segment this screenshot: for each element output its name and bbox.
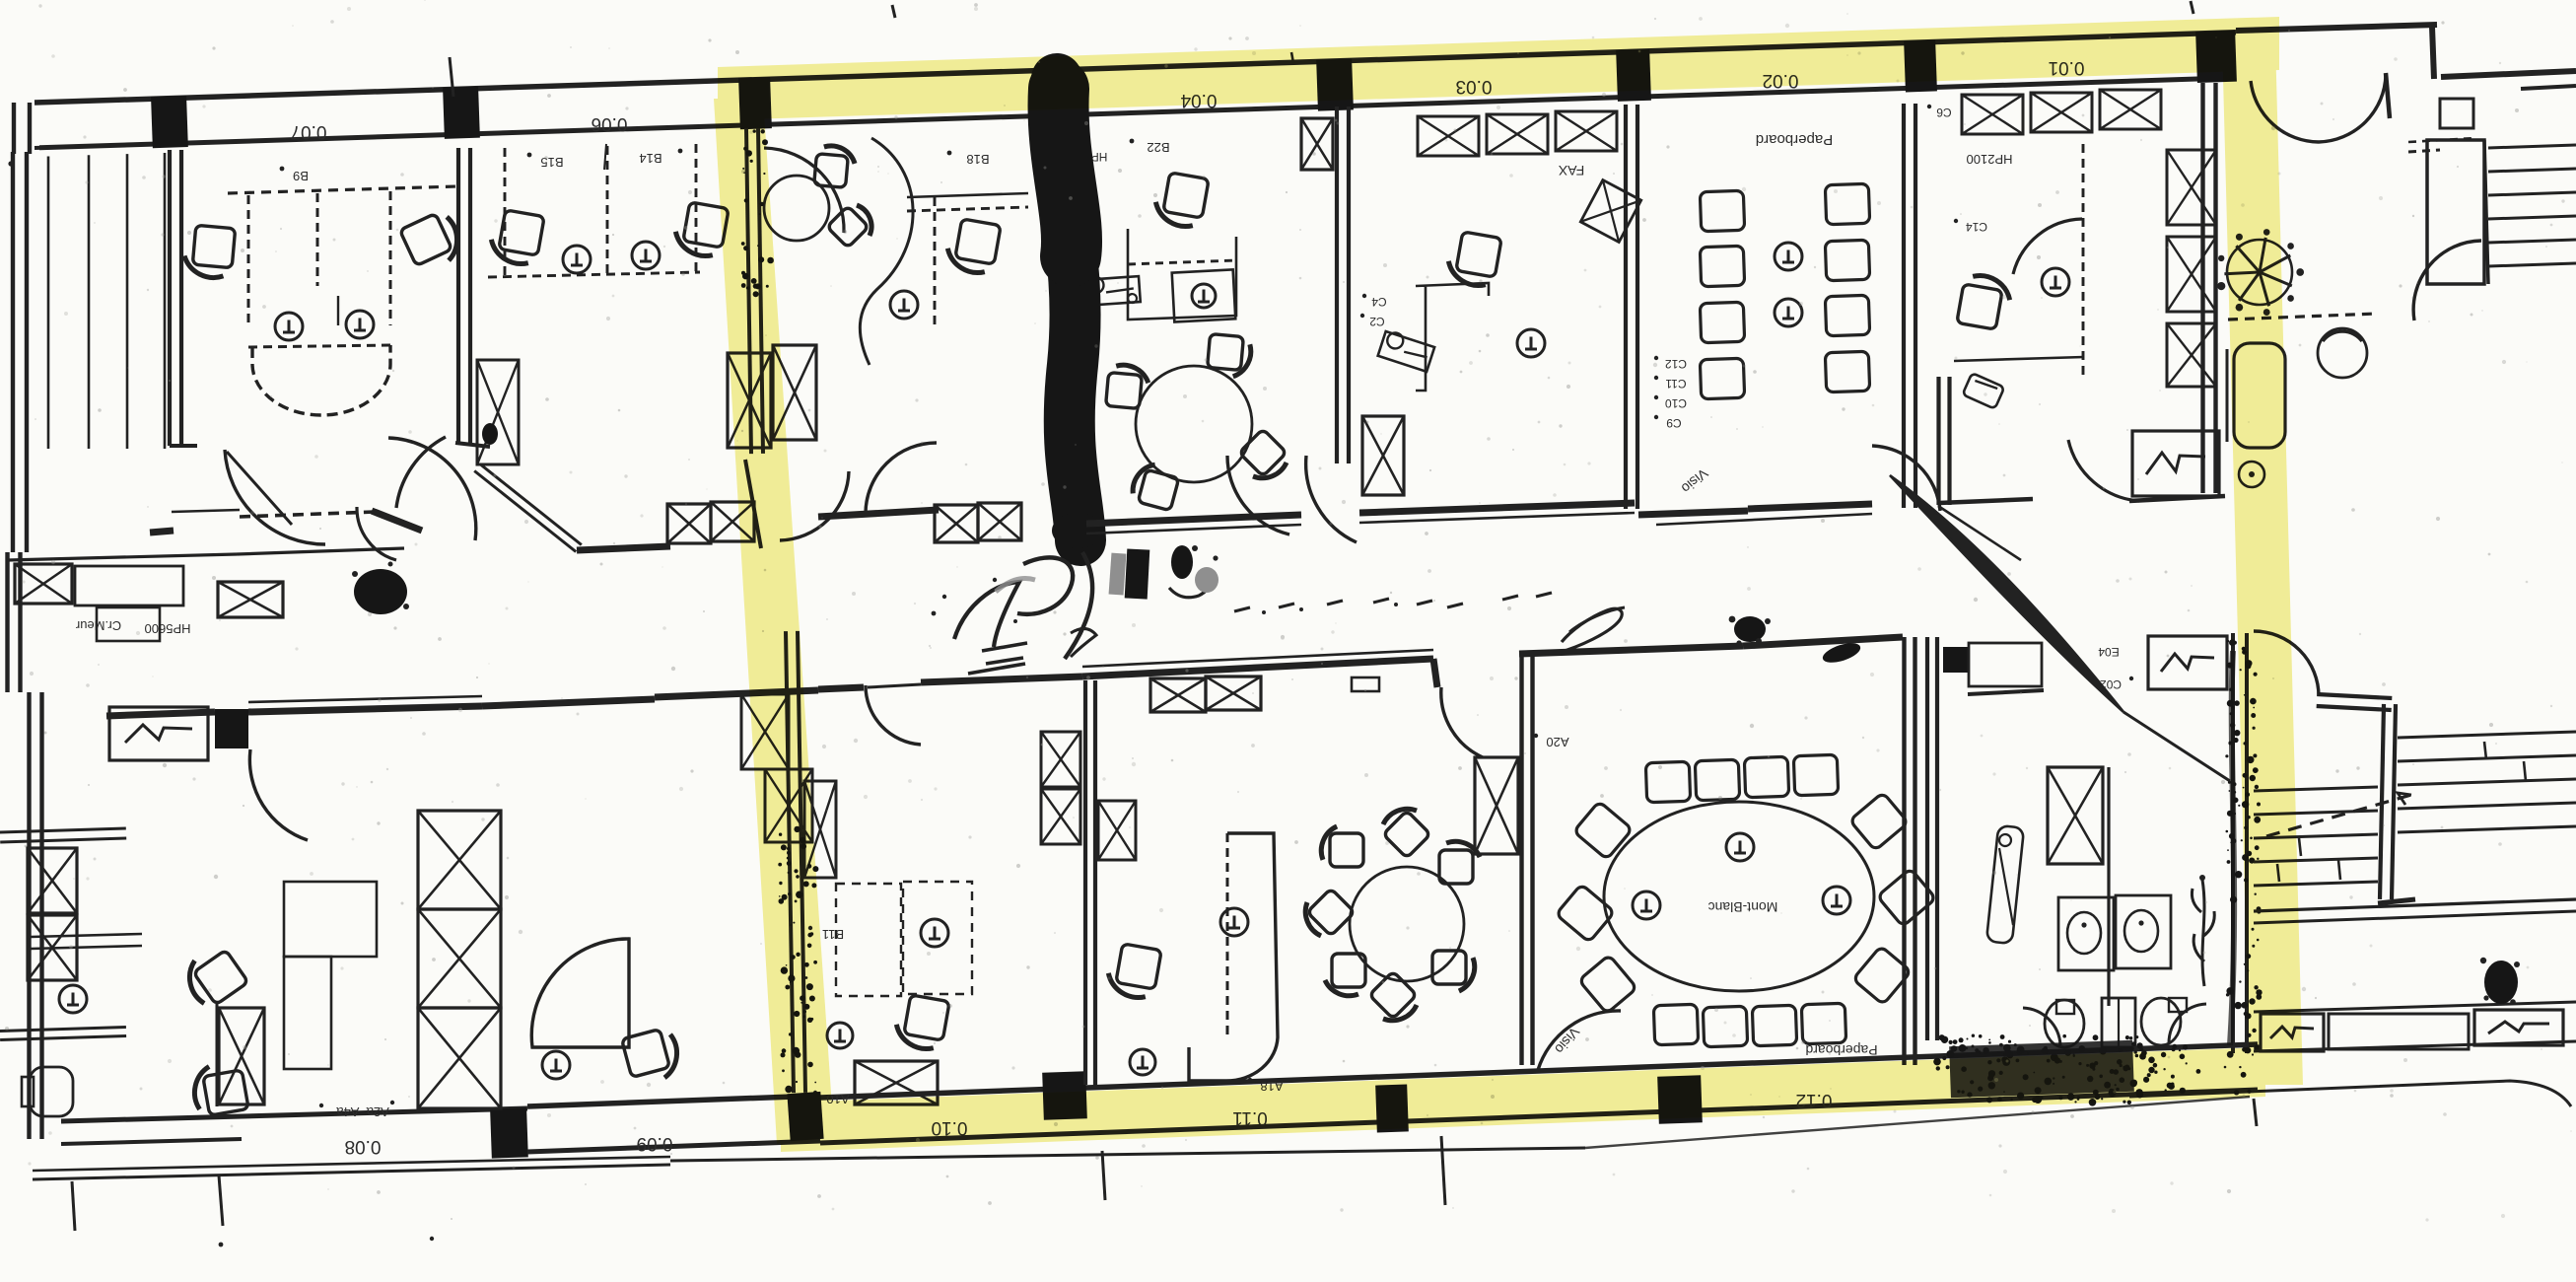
svg-text:0.06: 0.06 xyxy=(592,113,628,134)
svg-text:C4: C4 xyxy=(1371,295,1387,309)
svg-text:Mont-Blanc: Mont-Blanc xyxy=(1708,899,1778,915)
svg-text:0.08: 0.08 xyxy=(345,1136,382,1157)
svg-text:B22: B22 xyxy=(1147,140,1169,155)
svg-text:HP2100: HP2100 xyxy=(1967,152,2013,167)
svg-text:0.09: 0.09 xyxy=(637,1133,673,1154)
svg-text:E04: E04 xyxy=(2098,645,2120,659)
svg-text:B9: B9 xyxy=(293,169,309,183)
svg-text:C9: C9 xyxy=(1666,416,1682,430)
svg-text:C10: C10 xyxy=(1665,396,1687,410)
svg-text:C14: C14 xyxy=(1966,220,1987,234)
svg-text:A2a A4a: A2a A4a xyxy=(335,1104,388,1119)
svg-text:C2: C2 xyxy=(1369,315,1385,328)
svg-text:C12: C12 xyxy=(1665,357,1687,371)
svg-text:B15: B15 xyxy=(540,155,563,170)
svg-text:0.07: 0.07 xyxy=(291,121,327,142)
svg-text:B11: B11 xyxy=(822,927,844,942)
svg-text:Paperboard: Paperboard xyxy=(1805,1042,1877,1058)
svg-text:B14: B14 xyxy=(639,151,661,166)
svg-text:Cr.Meur: Cr.Meur xyxy=(75,618,121,633)
svg-text:A20: A20 xyxy=(1546,735,1568,749)
svg-text:HP5600: HP5600 xyxy=(145,621,191,636)
svg-text:C11: C11 xyxy=(1665,377,1686,391)
svg-text:C6: C6 xyxy=(1936,106,1952,119)
svg-text:FAX: FAX xyxy=(1558,163,1584,178)
svg-text:B18: B18 xyxy=(966,152,989,167)
svg-text:Paperboard: Paperboard xyxy=(1756,131,1833,148)
